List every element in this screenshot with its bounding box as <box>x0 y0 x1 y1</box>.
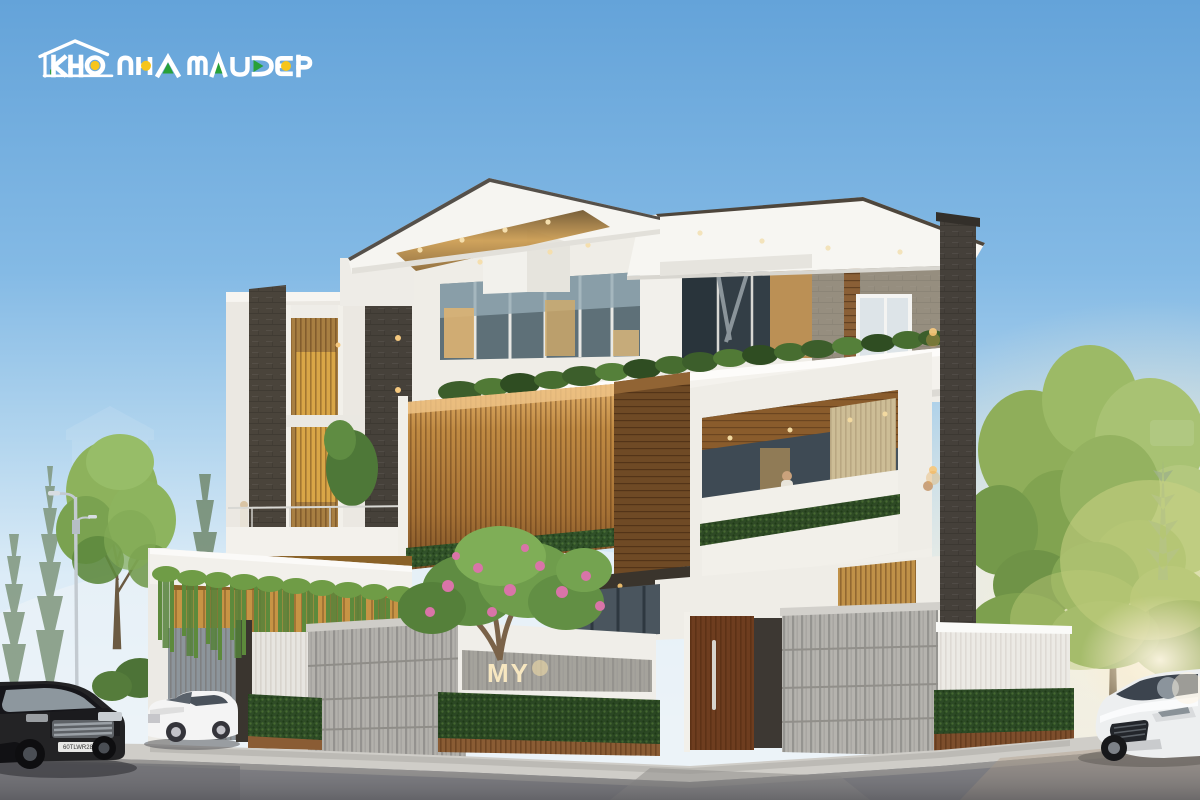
svg-text:60TLWR283: 60TLWR283 <box>63 745 97 751</box>
svg-text:MY: MY <box>487 658 530 688</box>
